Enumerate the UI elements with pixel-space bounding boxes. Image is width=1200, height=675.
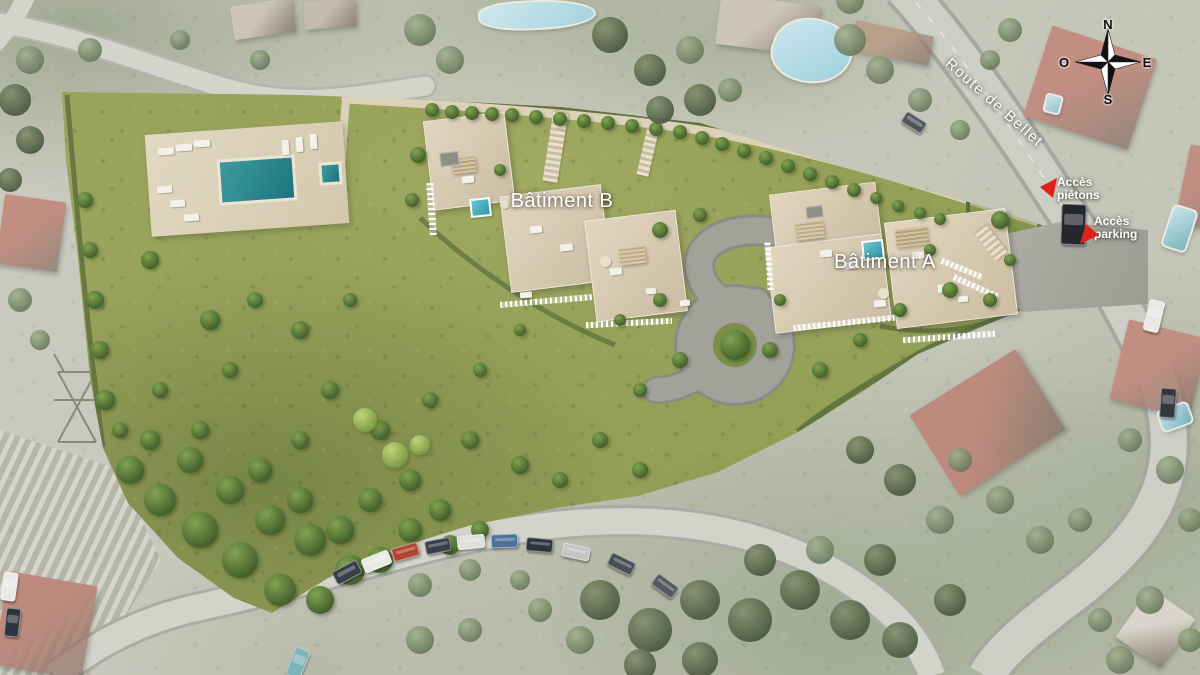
tree [326,516,354,544]
tree [16,126,44,154]
tree [398,518,422,542]
tree [461,431,479,449]
tree [812,362,828,378]
tree [1156,456,1184,484]
tree [1068,508,1092,532]
tree [715,137,729,151]
tree [200,310,220,330]
tree [601,116,615,130]
tree [82,242,98,258]
skylight [439,151,460,167]
tree [222,362,238,378]
tree [511,456,529,474]
tree [744,544,776,576]
tree [942,282,958,298]
tree [624,649,656,675]
tree [908,88,932,112]
tree [406,626,434,654]
tree [505,108,519,122]
tree [255,505,285,535]
tree [77,192,93,208]
access-pedestrian-label: Accès piétons [1057,176,1100,202]
house-roof [0,194,67,272]
building-a-label: Bâtiment A [800,251,970,274]
tree [646,96,674,124]
tree [191,421,209,439]
pergola [895,226,929,248]
tree [986,486,1014,514]
tree [429,499,451,521]
tree [718,78,742,102]
car [491,534,518,549]
terrace-furniture [157,185,172,193]
tree [566,626,594,654]
tree [948,448,972,472]
tree [676,36,704,64]
tree [737,144,751,158]
car [456,534,485,551]
tree [759,151,773,165]
building-b-label: Bâtiment B [477,190,647,213]
tree [86,291,104,309]
tree [577,114,591,128]
tree [410,147,426,163]
terrace-furniture [520,291,533,298]
tree [847,183,861,197]
tree [291,321,309,339]
terrace-furniture [680,299,691,306]
tree [16,46,44,74]
tree [803,167,817,181]
tree [684,84,716,116]
tree [177,447,203,473]
skylight [805,205,823,219]
tree [695,131,709,145]
tree [514,324,526,336]
compass-west-label: O [1056,55,1072,70]
tree [720,330,750,360]
tree [693,208,707,222]
tree [1088,608,1112,632]
tree [633,383,647,397]
tree [780,570,820,610]
tree [425,103,439,117]
tree [825,175,839,189]
terrace-furniture [194,139,210,147]
tree [1178,508,1200,532]
tree [294,524,326,556]
tree [30,330,50,350]
access-pedestrian-arrow-icon [1038,175,1060,201]
tree [680,580,720,620]
tree [459,559,481,581]
tree [91,341,109,359]
tree [485,107,499,121]
terrace-furniture [560,243,574,251]
tree [762,342,778,358]
tree [473,363,487,377]
compass-east-label: E [1139,55,1155,70]
car [525,537,553,553]
tree [1178,628,1200,652]
terrace-furniture [176,143,192,151]
tree [614,314,626,326]
site-plan-map: N S E O Bâtiment B Bâtiment A Route de B… [0,0,1200,675]
tree [465,106,479,120]
house-roof [303,0,357,30]
pergola [619,246,647,265]
tree [673,125,687,139]
tree [458,618,482,642]
tree [358,488,382,512]
tree [78,38,102,62]
tree [404,14,436,46]
tree [248,458,272,482]
tree [95,390,115,410]
tree [884,464,916,496]
terrace-furniture [295,137,303,152]
tree [682,642,718,675]
tree [774,294,786,306]
tree [112,422,128,438]
tree [870,192,882,204]
terrace-furniture [646,287,657,294]
tree [592,432,608,448]
tree [625,119,639,133]
tree [892,200,904,212]
tree [216,476,244,504]
tree [728,598,772,642]
tree [264,574,296,606]
pergola [795,220,825,240]
tree [144,484,176,516]
tree [1136,586,1164,614]
small-pool [318,161,343,186]
tree [399,469,421,491]
tree [291,431,309,449]
tree [287,487,313,513]
tree [926,506,954,534]
tree [846,436,874,464]
tree [405,193,419,207]
terrace-furniture [610,267,623,275]
tree [222,542,258,578]
terrace-furniture [170,199,185,207]
tree [445,105,459,119]
tree [116,456,144,484]
tree [634,54,666,86]
tree [806,536,834,564]
tree [170,30,190,50]
compass-north-label: N [1100,17,1116,32]
tree [914,207,926,219]
tree [950,120,970,140]
tree [321,381,339,399]
tree [652,222,668,238]
terrace-furniture [309,134,317,149]
tree [250,50,270,70]
terrace-furniture [281,140,289,155]
tree [343,293,357,307]
tree [834,24,866,56]
tree [8,288,32,312]
tree [882,622,918,658]
tree [998,18,1022,42]
tree [983,293,997,307]
tree [494,164,506,176]
tree [353,408,377,432]
tree [1118,428,1142,452]
tree [140,430,160,450]
tree [1004,254,1016,266]
tree [781,159,795,173]
terrace-furniture [958,295,969,302]
tree [672,352,688,368]
tree [991,211,1009,229]
access-pedestrian-line2: piétons [1057,189,1100,202]
tree [247,292,263,308]
car [1159,387,1177,418]
tree [182,512,218,548]
tree [410,435,430,455]
car [4,607,22,637]
tree [510,570,530,590]
main-swimming-pool [216,154,297,205]
terrace-table [878,288,889,299]
tree [653,293,667,307]
tree [864,544,896,576]
terrace-furniture [184,213,199,221]
tree [1026,526,1054,554]
tree [1106,646,1134,674]
tree [980,50,1000,70]
compass-south-label: S [1100,92,1116,107]
tree [422,392,438,408]
tree [141,251,159,269]
tree [592,17,628,53]
tree [893,303,907,317]
tree [152,382,168,398]
tree [306,586,334,614]
tree [632,462,648,478]
building-roof-terrace [584,210,688,322]
tree [580,580,620,620]
access-parking-arrow-icon [1077,222,1101,246]
tree [528,598,552,622]
terrace-furniture [462,175,475,183]
tree [382,442,408,468]
tree [934,584,966,616]
tree [529,110,543,124]
tree [553,112,567,126]
terrace-furniture [158,147,174,155]
tree [853,333,867,347]
tree [0,84,31,116]
terrace-furniture [530,225,543,233]
tree [408,573,432,597]
tree [934,213,946,225]
tree [866,56,894,84]
tree [830,600,870,640]
terrace-furniture [874,299,887,307]
tree [436,46,464,74]
tree [552,472,568,488]
compass-main-points [1075,29,1141,95]
tree [649,122,663,136]
tree [628,608,672,652]
terrace-table [600,256,611,267]
